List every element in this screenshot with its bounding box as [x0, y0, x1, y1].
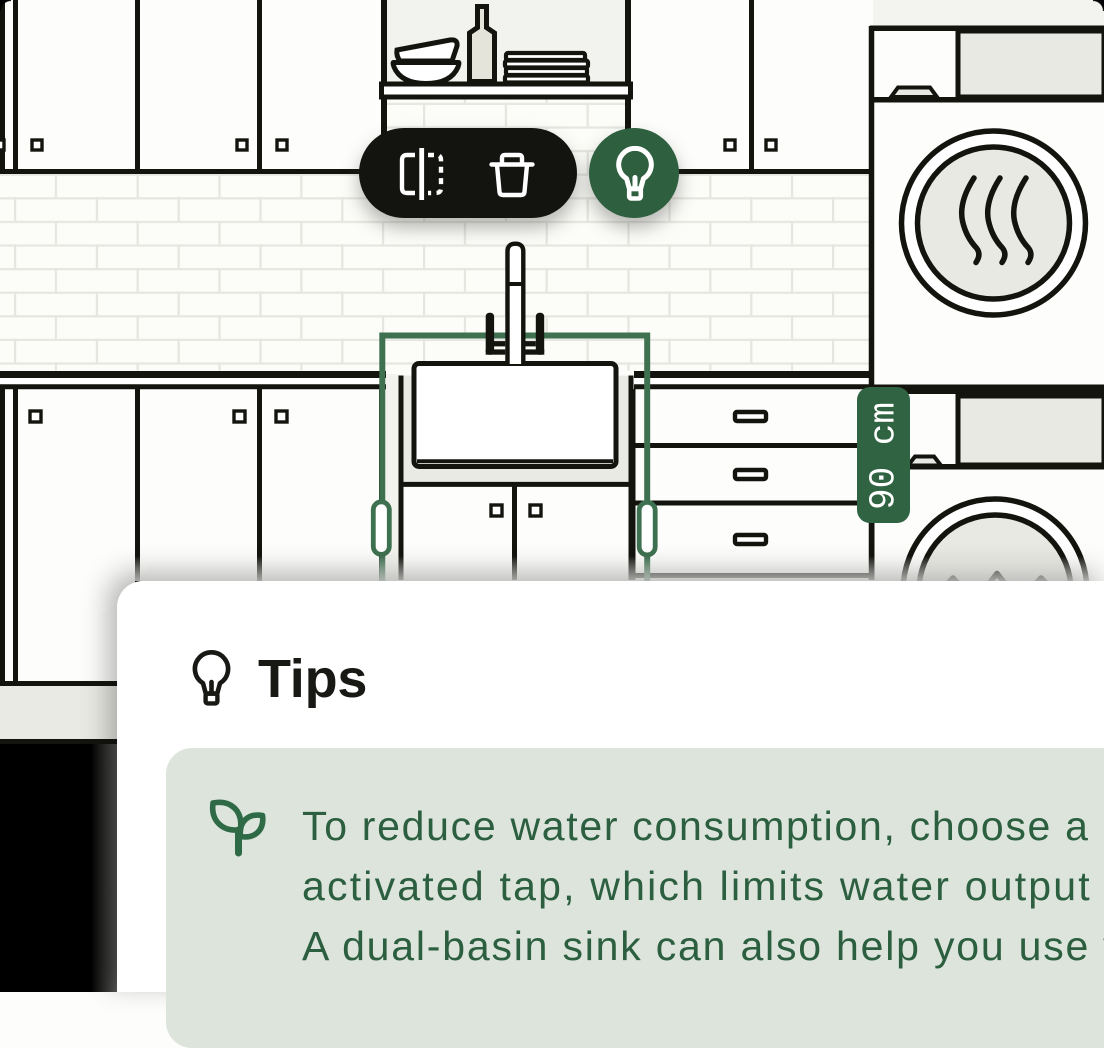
svg-text:90 cm: 90 cm	[864, 402, 905, 510]
